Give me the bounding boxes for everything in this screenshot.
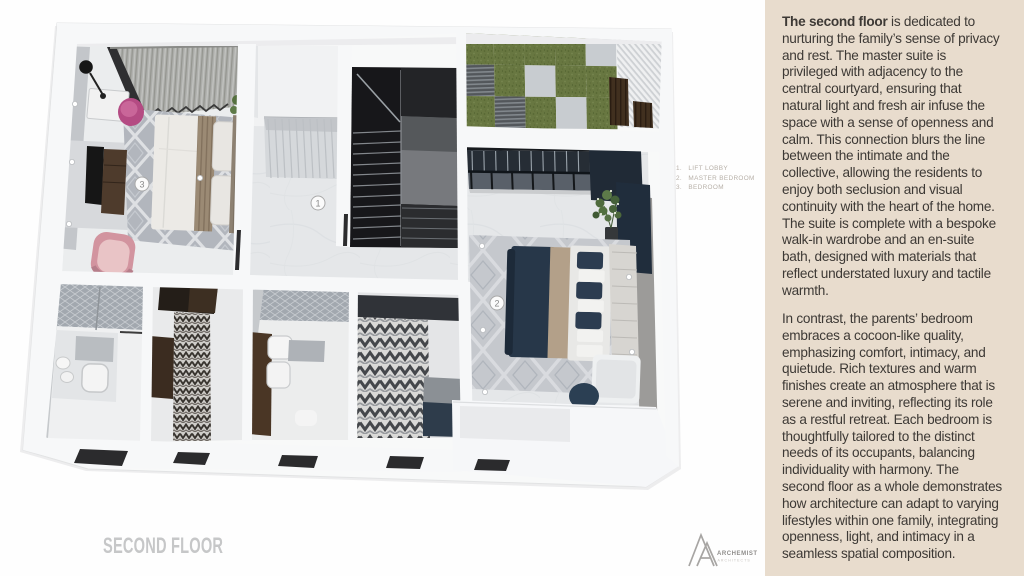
svg-text:2: 2 [494, 299, 499, 309]
svg-text:3: 3 [139, 180, 144, 190]
svg-text:1: 1 [315, 199, 320, 209]
svg-text:ARCHITECTS: ARCHITECTS [718, 559, 751, 563]
svg-text:ARCHEMIST: ARCHEMIST [717, 551, 758, 557]
